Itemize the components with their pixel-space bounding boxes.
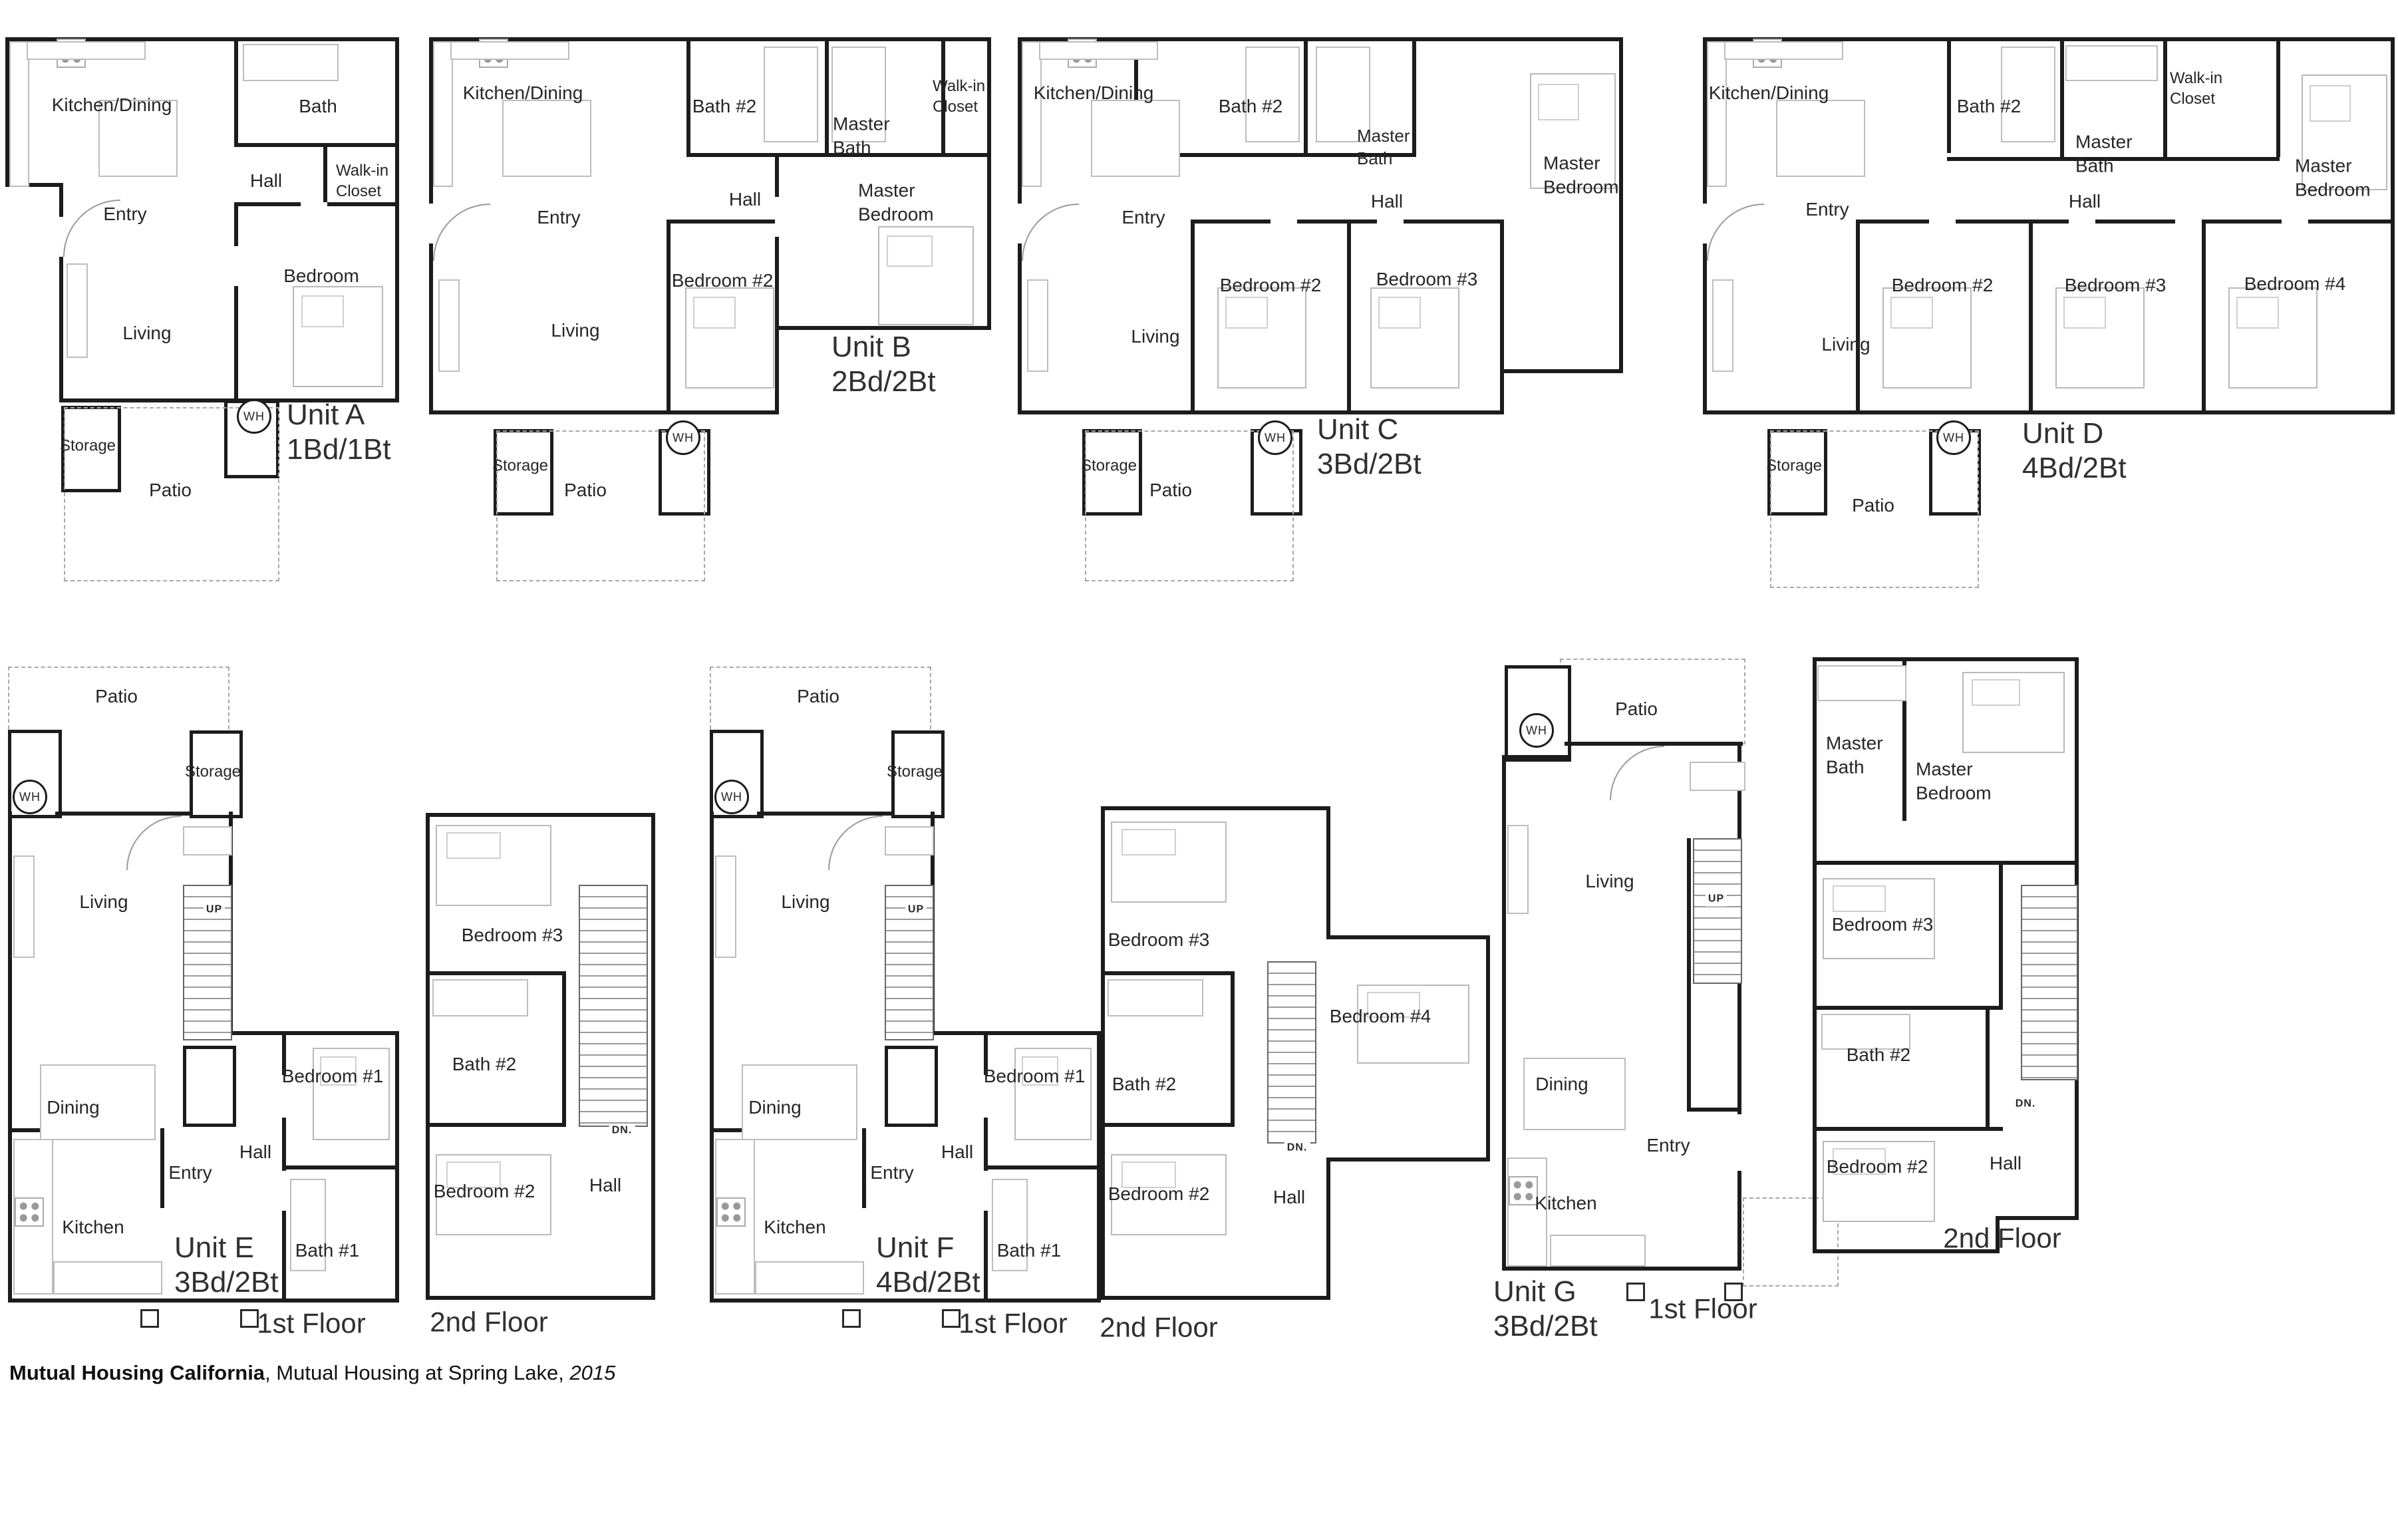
unit-d-hall-label: Hall <box>2069 190 2101 214</box>
wall <box>1817 1127 2003 1131</box>
unit-e-2nd-bedroom-3-label: Bedroom #3 <box>462 923 563 947</box>
unit-c-title: Unit C 3Bd/2Bt <box>1317 412 1422 482</box>
unit-a-bedroom-label: Bedroom <box>283 264 359 288</box>
unit-e-1st-bedroom-1-label: Bedroom #1 <box>282 1064 384 1088</box>
unit-c-storage-label: Storage <box>1081 455 1137 476</box>
unit-d-living-label: Living <box>1821 333 1870 357</box>
floor-plan-sheet: Mutual Housing California, Mutual Housin… <box>0 0 2398 1540</box>
unit-c-hall-label: Hall <box>1371 190 1403 214</box>
unit-d-bedroom-4-label: Bedroom #4 <box>2244 272 2346 296</box>
unit-g-2nd-master-label: Master Bedroom <box>1916 758 1992 806</box>
unit-c-entry-label: Entry <box>1122 206 1165 230</box>
unit-d-bedroom-3-label: Bedroom #3 <box>2065 273 2167 297</box>
unit-e-1st-patio-label: Patio <box>95 685 138 708</box>
staircase <box>2021 885 2078 1080</box>
unit-b-water-heater: WH <box>666 420 700 455</box>
unit-f-2nd-bedroom-2-label: Bedroom #2 <box>1108 1182 1210 1206</box>
wall <box>1813 657 1817 1253</box>
unit-d-master-label: Master Bedroom <box>2295 154 2371 203</box>
unit-e-1st-dining-label: Dining <box>47 1096 99 1120</box>
unit-f-1st-title: Unit F 4Bd/2Bt <box>876 1231 980 1300</box>
unit-g-1st-living-label: Living <box>1585 869 1634 893</box>
unit-d-walk-in-label: Walk-in Closet <box>2170 68 2222 109</box>
unit-d-bedroom-2-label: Bedroom #2 <box>1892 273 1994 297</box>
unit-f-2nd-floor-label: 2nd Floor <box>1100 1310 1217 1346</box>
unit-e-1st-bath-1-label: Bath #1 <box>295 1239 360 1263</box>
unit-f-1st-living-label: Living <box>781 890 829 914</box>
wall <box>1986 1010 1990 1127</box>
unit-g-1st-entry-label: Entry <box>1646 1134 1690 1157</box>
unit-f-1st-storage-label: Storage <box>887 761 943 782</box>
unit-g-2nd-bedroom-2-label: Bedroom #2 <box>1827 1155 1928 1179</box>
wall <box>1817 1006 2003 1010</box>
unit-b-patio-label: Patio <box>564 478 607 502</box>
wall <box>1813 861 2075 865</box>
unit-c-bedroom-2-label: Bedroom #2 <box>1220 273 1322 297</box>
unit-e-1st-hall-label: Hall <box>239 1140 271 1164</box>
unit-d-kitchen-dining-label: Kitchen/Dining <box>1709 81 1829 105</box>
unit-e-2nd-hall-label: Hall <box>589 1173 621 1197</box>
unit-b-entry-label: Entry <box>537 206 580 230</box>
caption-project-name: Mutual Housing California <box>9 1361 265 1384</box>
unit-f-1st-up-label: UP <box>905 903 927 917</box>
unit-f-2nd-bath-2-label: Bath #2 <box>1112 1072 1177 1096</box>
unit-g-2nd-dn-label: DN. <box>2013 1098 2039 1112</box>
unit-a-hall-label: Hall <box>250 169 282 193</box>
unit-c-kitchen-dining-label: Kitchen/Dining <box>1034 81 1154 105</box>
unit-f-1st-dining-label: Dining <box>748 1096 801 1120</box>
unit-f-2nd-bedroom-3-label: Bedroom #3 <box>1108 928 1210 952</box>
unit-b-storage-label: Storage <box>492 455 548 476</box>
unit-g-2nd-bedroom-3-label: Bedroom #3 <box>1832 913 1934 937</box>
caption-year: 2015 <box>569 1361 615 1384</box>
unit-e-1st-water-heater: WH <box>13 780 47 814</box>
unit-b-title: Unit B 2Bd/2Bt <box>831 330 936 399</box>
unit-b-living-label: Living <box>551 319 599 343</box>
unit-b-bath-2-label: Bath #2 <box>692 94 757 118</box>
unit-g-2nd-master-label: Master Bath <box>1826 732 1883 780</box>
unit-a-walk-in-label: Walk-in Closet <box>336 160 388 202</box>
unit-b-hall-label: Hall <box>729 188 761 212</box>
unit-f-1st-entry-label: Entry <box>870 1161 913 1185</box>
unit-c-bath-2-label: Bath #2 <box>1219 94 1283 118</box>
unit-f-2nd-bedroom-4-label: Bedroom #4 <box>1330 1004 1431 1028</box>
unit-e-1st-title: Unit E 3Bd/2Bt <box>174 1231 279 1300</box>
unit-e-1st-up-label: UP <box>204 903 225 917</box>
unit-b-bedroom-2-label: Bedroom #2 <box>672 269 774 293</box>
unit-c-living-label: Living <box>1131 325 1179 349</box>
unit-g-1st-title: Unit G 3Bd/2Bt <box>1493 1275 1598 1344</box>
unit-f-2nd-dn-label: DN. <box>1284 1142 1310 1155</box>
unit-d-title: Unit D 4Bd/2Bt <box>2022 416 2127 486</box>
bed-furniture <box>1823 1141 1935 1222</box>
wall <box>1996 1216 2079 1220</box>
unit-c-patio-label: Patio <box>1149 478 1192 502</box>
unit-a-title: Unit A 1Bd/1Bt <box>287 398 391 467</box>
unit-g-2nd-hall-label: Hall <box>1990 1152 2022 1175</box>
sheet-caption: Mutual Housing California, Mutual Housin… <box>9 1361 615 1385</box>
unit-e-2nd-bedroom-2-label: Bedroom #2 <box>434 1179 535 1203</box>
unit-d-water-heater: WH <box>1936 420 1971 455</box>
unit-e-2nd-floor-label: 2nd Floor <box>430 1305 547 1341</box>
wall <box>1999 865 2003 1006</box>
unit-a-patio-label: Patio <box>149 478 192 502</box>
unit-f-1st-floor-label: 1st Floor <box>959 1306 1067 1342</box>
unit-g-1st-up-label: UP <box>1706 893 1727 907</box>
unit-a-water-heater: WH <box>237 399 271 434</box>
unit-g-1st-kitchen-label: Kitchen <box>1535 1191 1596 1215</box>
unit-d-entry-label: Entry <box>1805 198 1849 222</box>
caption-project-location: , Mutual Housing at Spring Lake, <box>265 1361 569 1384</box>
unit-a-living-label: Living <box>122 321 171 345</box>
unit-g-2nd-floor-label: 2nd Floor <box>1943 1221 2061 1257</box>
unit-g-1st-floor-label: 1st Floor <box>1648 1291 1757 1328</box>
furniture <box>1817 665 1906 701</box>
unit-g-1st-water-heater: WH <box>1519 713 1554 748</box>
unit-g-1st-dining-label: Dining <box>1535 1072 1588 1096</box>
unit-d-patio-label: Patio <box>1852 494 1894 518</box>
unit-f-1st-water-heater: WH <box>714 780 749 814</box>
bed-furniture <box>1962 672 2065 753</box>
unit-d-storage-label: Storage <box>1766 455 1822 476</box>
wall <box>1813 657 2079 661</box>
unit-f-1st-bath-1-label: Bath #1 <box>997 1239 1062 1263</box>
unit-g-1st-patio-label: Patio <box>1615 697 1658 721</box>
unit-g-2nd-bath-2-label: Bath #2 <box>1847 1043 1911 1067</box>
unit-f-1st-kitchen-label: Kitchen <box>764 1215 825 1239</box>
unit-e-1st-storage-label: Storage <box>185 761 241 782</box>
unit-b-master-label: Master Bedroom <box>858 179 934 228</box>
unit-e-1st-floor-label: 1st Floor <box>257 1306 365 1342</box>
unit-c-water-heater: WH <box>1258 420 1292 455</box>
unit-b-kitchen-dining-label: Kitchen/Dining <box>463 81 583 105</box>
unit-f-1st-patio-label: Patio <box>797 685 839 708</box>
unit-c-bedroom-3-label: Bedroom #3 <box>1376 267 1478 291</box>
unit-f-1st-bedroom-1-label: Bedroom #1 <box>984 1064 1086 1088</box>
unit-e-1st-living-label: Living <box>79 890 128 914</box>
unit-c-master-label: Master Bedroom <box>1543 152 1619 200</box>
unit-b-walk-in-label: Walk-in Closet <box>933 76 985 117</box>
unit-e-2nd-dn-label: DN. <box>609 1124 635 1138</box>
unit-e-1st-kitchen-label: Kitchen <box>62 1215 124 1239</box>
unit-c-master-label: Master Bath <box>1357 125 1410 170</box>
unit-d-bath-2-label: Bath #2 <box>1957 94 2022 118</box>
unit-d-master-label: Master Bath <box>2075 130 2133 179</box>
unit-f-1st-hall-label: Hall <box>941 1140 973 1164</box>
unit-a-bath-label: Bath <box>299 94 337 118</box>
unit-a-entry-label: Entry <box>103 202 146 226</box>
unit-e-1st-entry-label: Entry <box>168 1161 212 1185</box>
unit-b-master-label: Master Bath <box>833 112 890 161</box>
unit-a-storage-label: Storage <box>60 435 116 456</box>
unit-f-2nd-hall-label: Hall <box>1273 1185 1305 1209</box>
unit-e-2nd-bath-2-label: Bath #2 <box>452 1052 517 1076</box>
unit-a-kitchen-dining-label: Kitchen/Dining <box>52 93 172 117</box>
